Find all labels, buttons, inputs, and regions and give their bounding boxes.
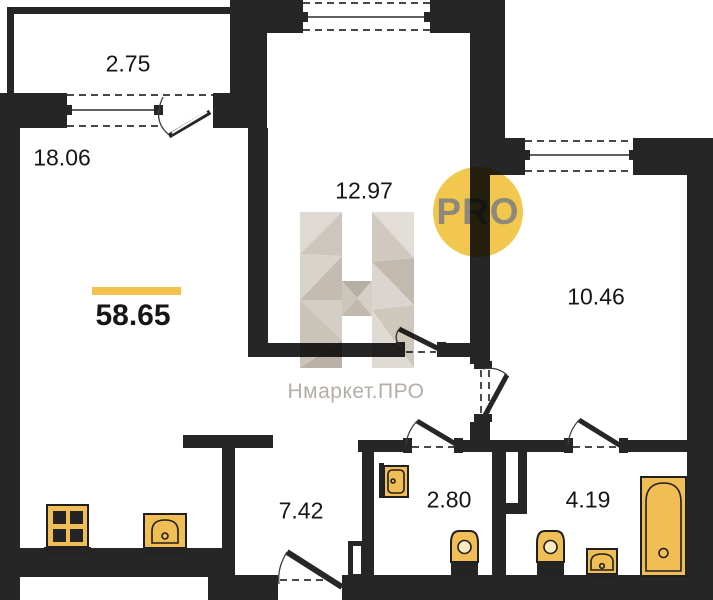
living-room-area-label: 18.06 <box>33 147 91 170</box>
toilet-icon <box>451 531 478 576</box>
bedroom-area-label: 12.97 <box>335 180 393 203</box>
wash-sink-icon <box>379 463 408 498</box>
stove-icon <box>44 505 91 556</box>
pro-badge: PRO <box>433 167 523 257</box>
bathtub-icon <box>641 477 686 576</box>
kitchen-sink-icon <box>141 514 189 556</box>
bathroom2-door <box>564 420 628 453</box>
bathroom2-area-label: 4.19 <box>566 489 611 512</box>
bedroom-window <box>299 3 433 30</box>
bedroom2-area-label: 10.46 <box>567 286 625 309</box>
watermark-brand-text: Нмаркет.ПРО <box>288 380 425 404</box>
wash-sink-icon <box>587 549 617 581</box>
total-area-accent-bar <box>92 287 181 295</box>
balcony-area-label: 2.75 <box>106 53 151 76</box>
hallway-area-label: 7.42 <box>279 500 324 523</box>
bedroom2-door <box>474 361 507 422</box>
balcony-door <box>159 97 210 136</box>
bedroom2-window <box>521 141 638 171</box>
bathroom-door <box>403 421 463 453</box>
floor-plan: 2.75 18.06 12.97 10.46 58.65 7.42 2.80 4… <box>0 0 713 600</box>
entrance-door <box>279 552 342 587</box>
total-area-label: 58.65 <box>95 301 170 331</box>
toilet-icon <box>537 531 564 576</box>
bathroom-area-label: 2.80 <box>427 489 472 512</box>
